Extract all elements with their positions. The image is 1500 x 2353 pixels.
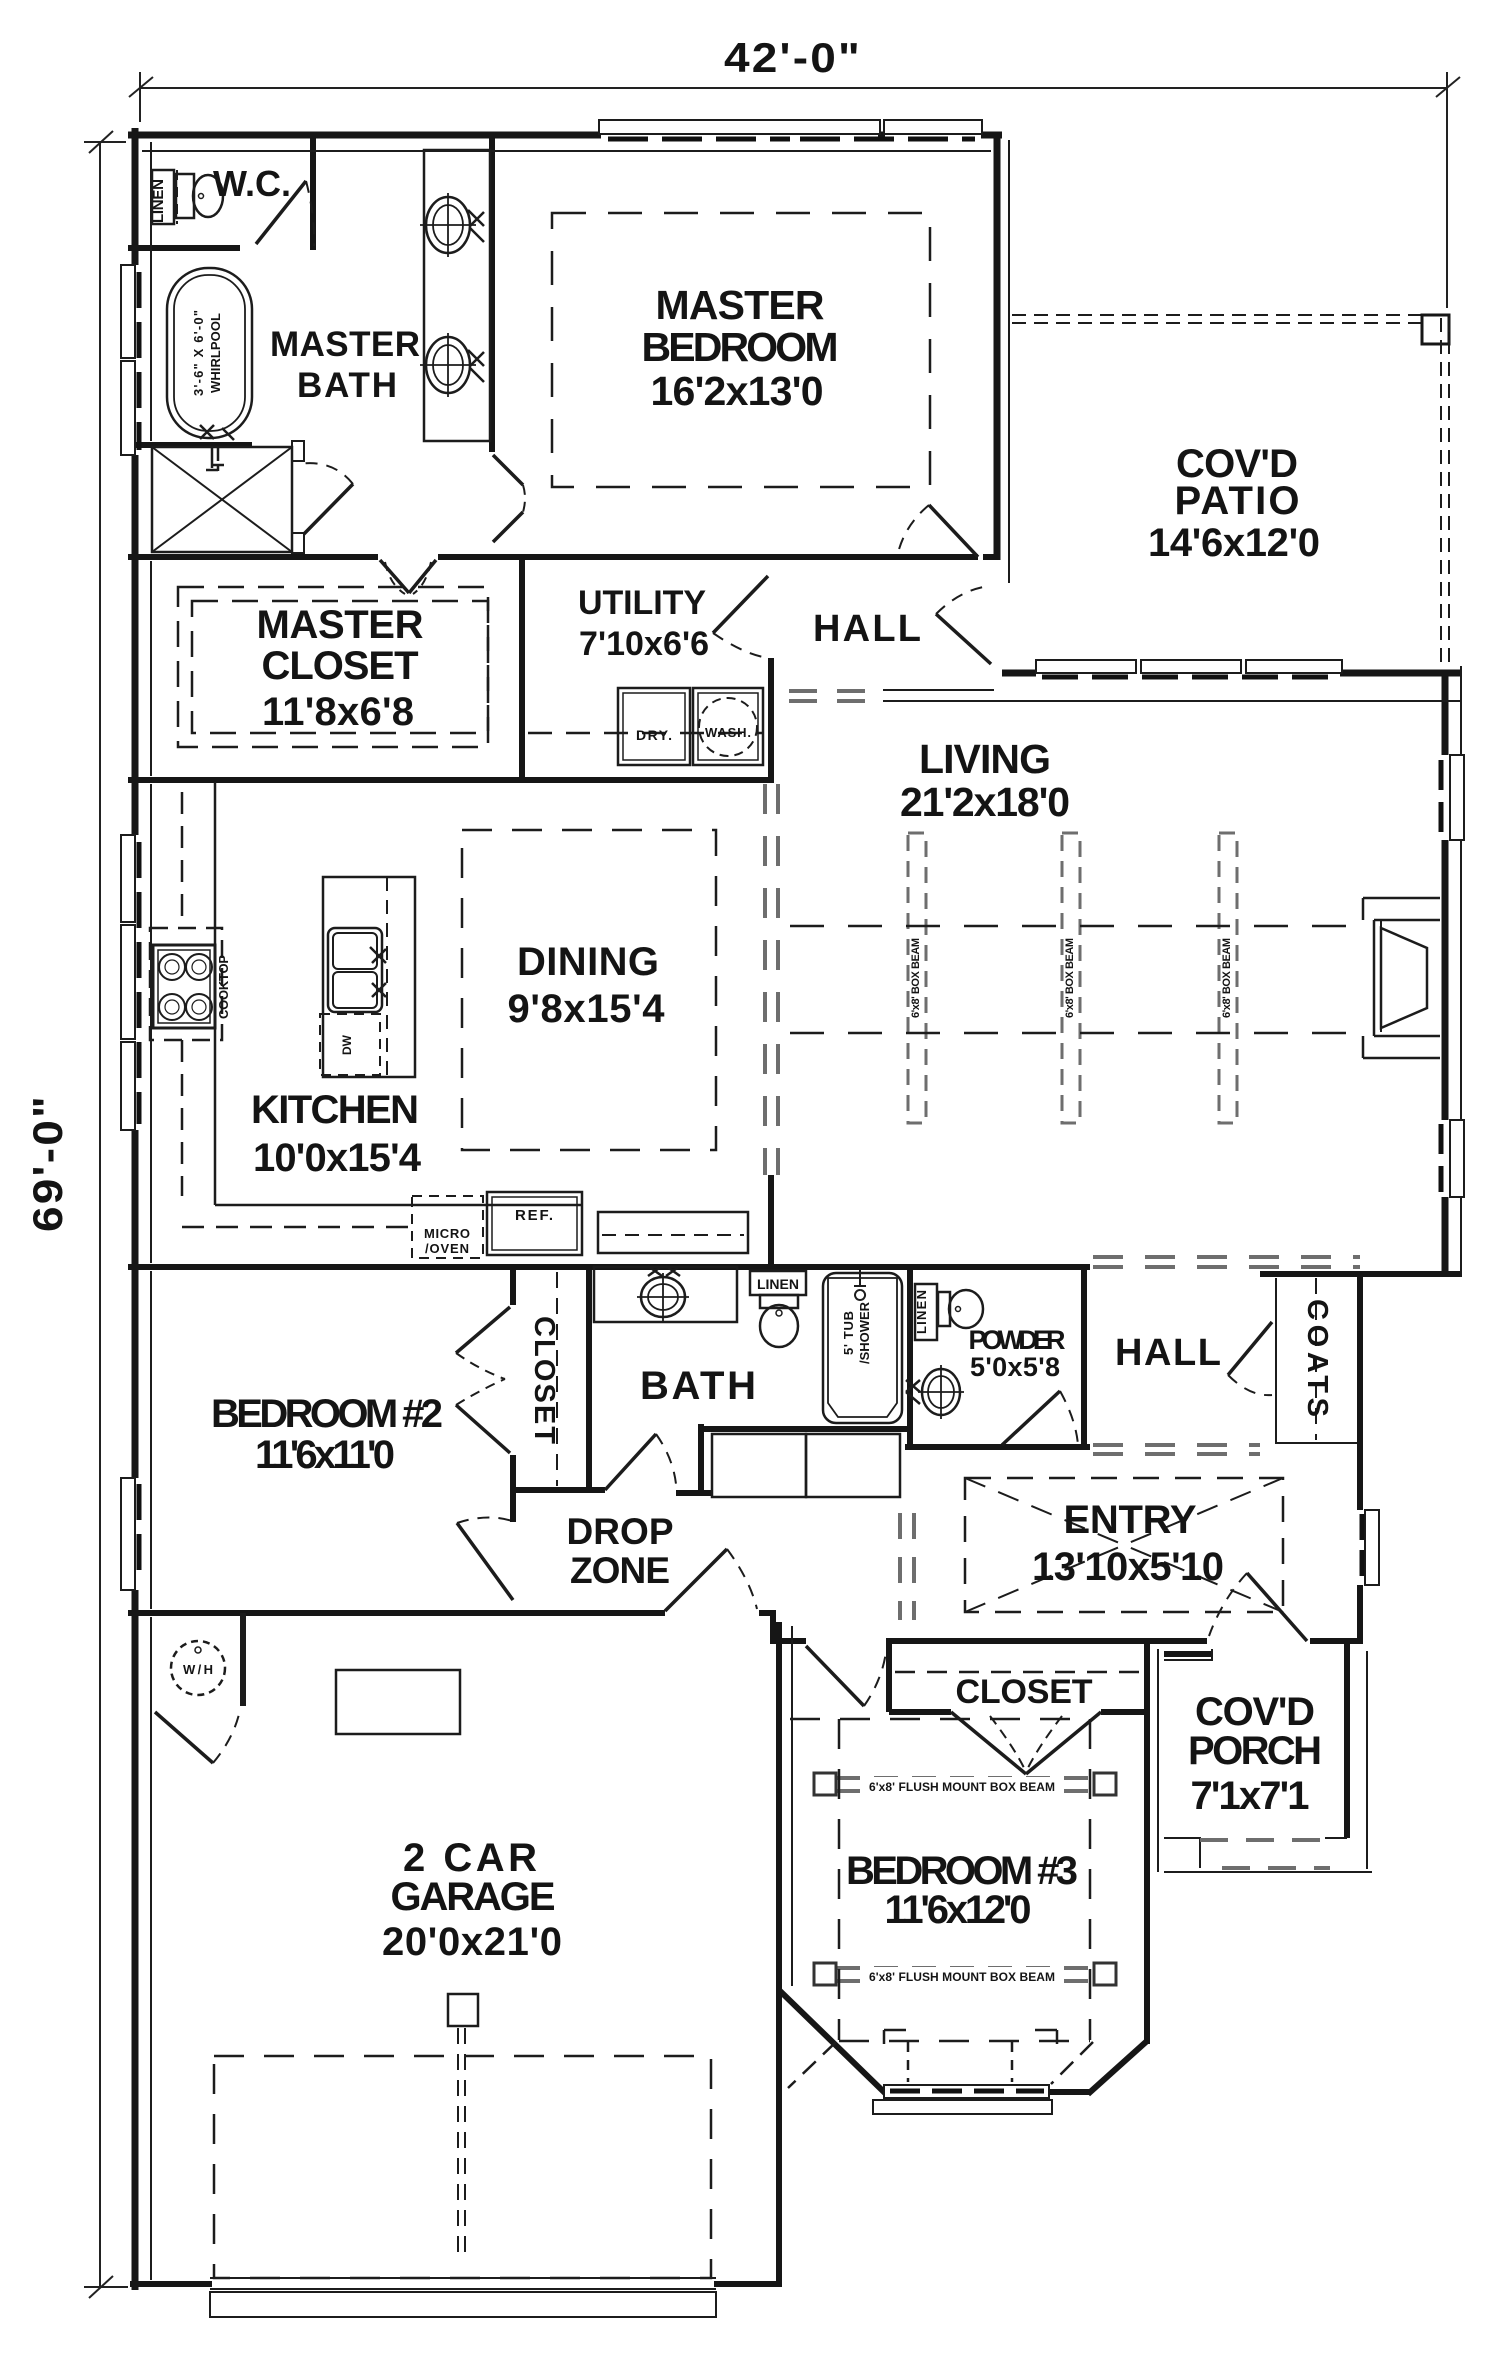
svg-text:HALL: HALL [813,608,921,650]
svg-text:LINEN: LINEN [150,179,167,223]
svg-text:WASH.: WASH. [705,725,751,740]
svg-text:/OVEN: /OVEN [425,1241,469,1256]
svg-text:LIVING: LIVING [919,736,1051,782]
svg-text:9'8x15'4: 9'8x15'4 [508,987,666,1031]
svg-text:11'6x12'0: 11'6x12'0 [885,1888,1032,1932]
svg-text:COOKTOP: COOKTOP [216,955,231,1019]
svg-text:6'x8' BOX BEAM: 6'x8' BOX BEAM [910,938,922,1018]
svg-text:MICRO: MICRO [424,1226,470,1241]
svg-text:PORCH: PORCH [1188,1729,1322,1773]
svg-text:HALL: HALL [1115,1332,1221,1374]
svg-text:UTILITY: UTILITY [578,584,706,622]
svg-text:5' TUB: 5' TUB [841,1311,856,1355]
svg-text:ENTRY: ENTRY [1064,1498,1197,1542]
svg-text:6'x8' FLUSH MOUNT BOX BEAM: 6'x8' FLUSH MOUNT BOX BEAM [869,1970,1055,1984]
svg-text:DROP: DROP [567,1511,674,1552]
svg-text:KITCHEN: KITCHEN [251,1088,419,1132]
svg-text:7'10x6'6: 7'10x6'6 [579,625,709,663]
svg-text:69'-0": 69'-0" [24,1094,71,1232]
svg-text:PATIO: PATIO [1175,479,1300,523]
svg-text:MASTER: MASTER [656,282,825,328]
svg-text:LINEN: LINEN [757,1276,799,1292]
svg-text:6'x8' FLUSH MOUNT BOX BEAM: 6'x8' FLUSH MOUNT BOX BEAM [869,1780,1055,1794]
svg-text:11'8x6'8: 11'8x6'8 [262,690,414,734]
svg-text:10'0x15'4: 10'0x15'4 [253,1136,422,1180]
svg-text:MASTER: MASTER [257,603,424,647]
svg-text:POWDER: POWDER [969,1325,1066,1355]
svg-text:14'6x12'0: 14'6x12'0 [1148,521,1320,565]
svg-text:COV'D: COV'D [1195,1690,1315,1734]
svg-text:6'x8' BOX BEAM: 6'x8' BOX BEAM [1064,938,1076,1018]
svg-text:21'2x18'0: 21'2x18'0 [900,779,1070,825]
svg-text:CLOSET: CLOSET [262,644,419,688]
svg-text:2 CAR: 2 CAR [403,1836,537,1880]
svg-text:13'10x5'10: 13'10x5'10 [1032,1545,1224,1589]
svg-text:7'1x7'1: 7'1x7'1 [1191,1774,1310,1818]
svg-text:BEDROOM: BEDROOM [642,324,839,370]
svg-text:CLOSET: CLOSET [956,1673,1093,1711]
svg-text:MASTER: MASTER [270,325,420,364]
svg-text:BEDROOM #3: BEDROOM #3 [846,1849,1078,1893]
svg-text:6'x8' BOX BEAM: 6'x8' BOX BEAM [1221,938,1233,1018]
svg-text:20'0x21'0: 20'0x21'0 [382,1920,562,1964]
svg-text:COATS: COATS [1301,1299,1333,1417]
svg-text:WHIRLPOOL: WHIRLPOOL [208,313,223,393]
svg-text:ZONE: ZONE [570,1550,670,1591]
svg-text:GARAGE: GARAGE [391,1875,556,1919]
svg-text:42'-0": 42'-0" [724,34,862,81]
svg-text:BEDROOM #2: BEDROOM #2 [211,1392,443,1436]
svg-text:W.C.: W.C. [213,163,291,204]
svg-text:LINEN: LINEN [914,1290,929,1334]
svg-text:DW: DW [340,1034,354,1055]
svg-text:W/H: W/H [183,1662,213,1677]
svg-text:5'0x5'8: 5'0x5'8 [970,1352,1060,1382]
svg-text:3'-6" X 6'-0": 3'-6" X 6'-0" [191,310,206,396]
svg-text:DINING: DINING [517,940,659,984]
svg-text:/SHOWER: /SHOWER [857,1301,872,1364]
svg-text:11'6x11'0: 11'6x11'0 [255,1433,395,1477]
svg-text:16'2x13'0: 16'2x13'0 [651,368,824,414]
